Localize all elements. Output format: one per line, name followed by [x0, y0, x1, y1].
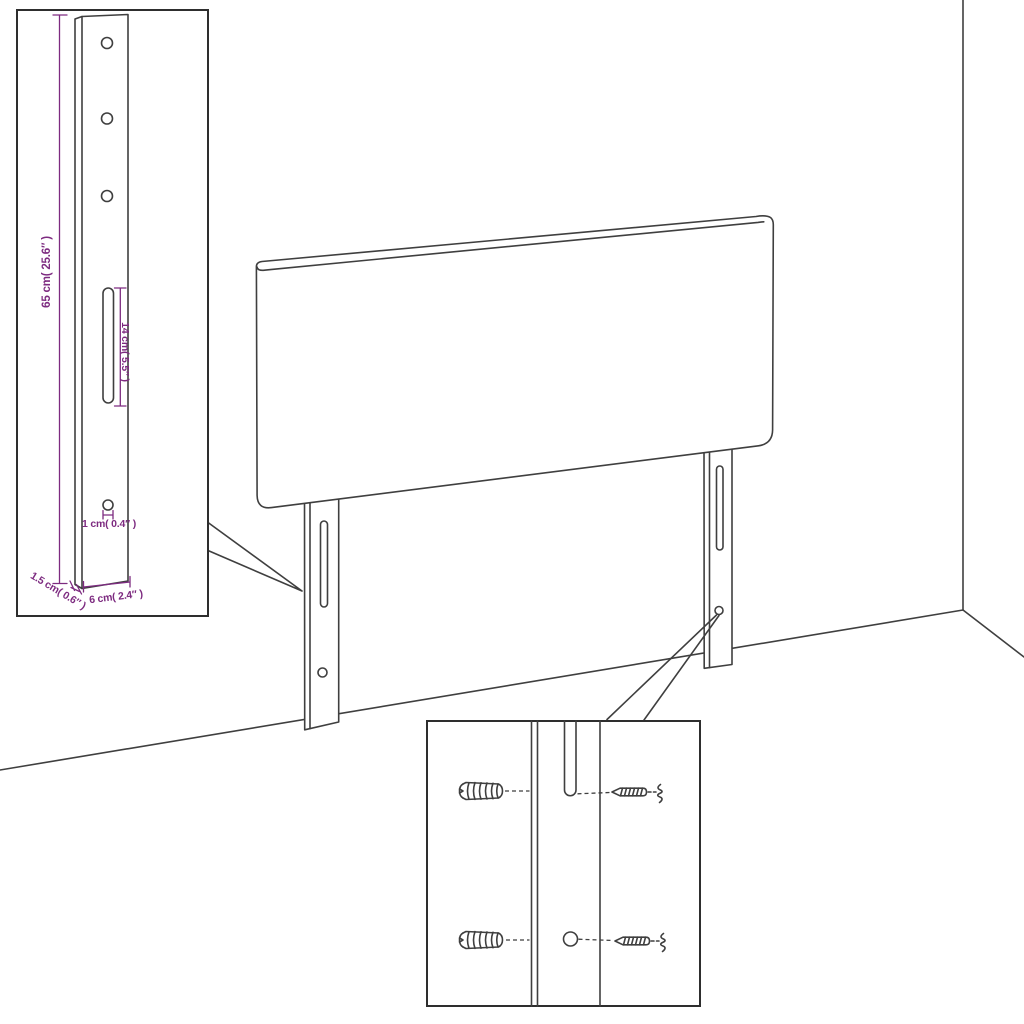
headboard-assembly-diagram: 65 cm( 25.6″ ) 14 cm( 5.5″ ) 1 cm( 0.4″ …	[0, 0, 1024, 1024]
screw-hole-icon	[564, 932, 578, 946]
inset-frame	[427, 721, 700, 1006]
slot-icon	[103, 288, 114, 403]
dimension-label-height: 65 cm( 25.6″ )	[41, 236, 53, 308]
callout-lines-mounting-inset	[607, 615, 719, 720]
callout-lines-bracket-inset	[208, 523, 302, 592]
headboard-left-leg	[305, 490, 339, 730]
dimension-label-slot-length: 14 cm( 5.5″ )	[119, 322, 131, 382]
mounting-detail-inset	[427, 721, 700, 1006]
screw-hole-icon	[102, 191, 113, 202]
right-leg-screw-hole-icon	[715, 607, 723, 615]
screw-hole-icon	[102, 38, 113, 49]
line-art	[0, 0, 1024, 1024]
right-leg-slot-icon	[717, 466, 724, 550]
headboard-right-leg	[704, 443, 732, 668]
headboard-panel	[256, 216, 773, 508]
left-leg-screw-hole-icon	[318, 668, 327, 677]
left-leg-slot-icon	[321, 521, 328, 607]
screw-hole-icon	[103, 500, 113, 510]
dimension-label-hole: 1 cm( 0.4″ )	[82, 518, 136, 530]
screw-hole-icon	[102, 113, 113, 124]
panel-face	[256, 216, 773, 508]
floor-line-right	[963, 610, 1024, 657]
